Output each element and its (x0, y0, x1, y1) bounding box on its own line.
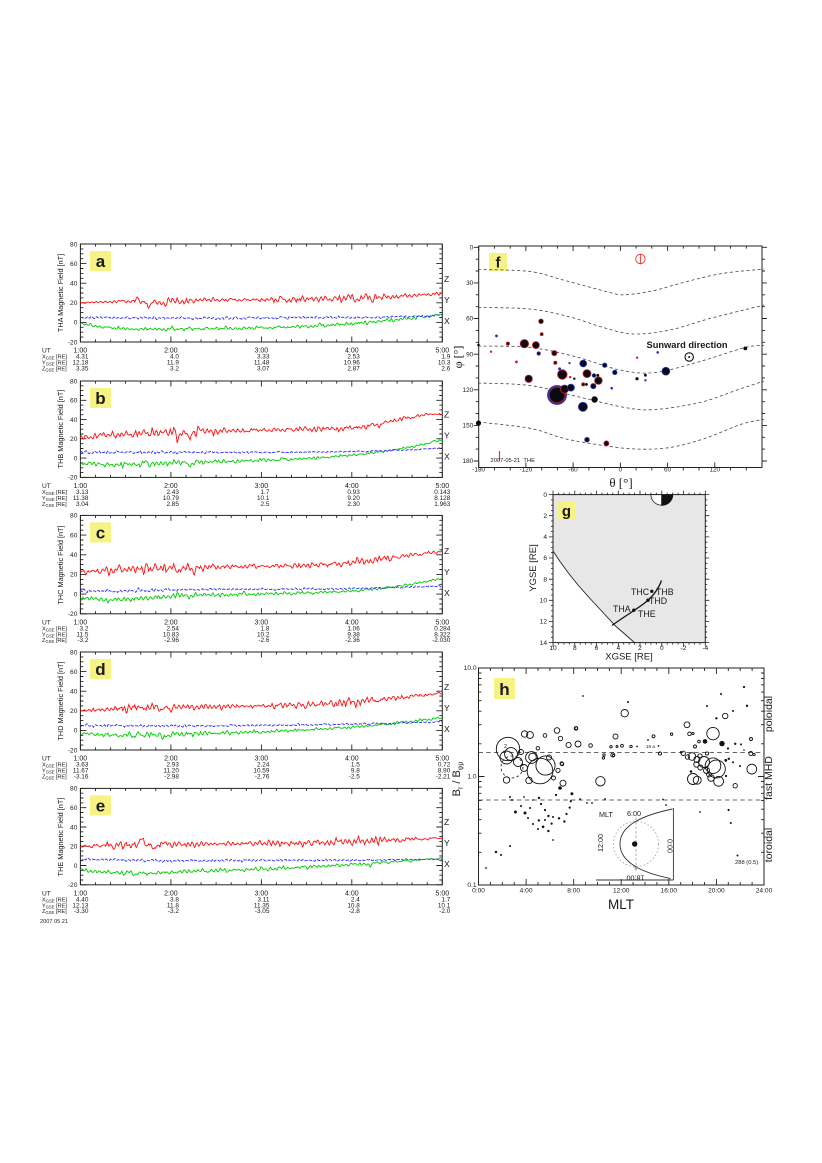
svg-text:d: d (95, 660, 105, 679)
svg-text:-20: -20 (68, 611, 78, 618)
svg-text:THD Magnetic Field [nT]: THD Magnetic Field [nT] (56, 661, 65, 740)
svg-text:8: 8 (573, 645, 577, 652)
svg-text:Y: Y (444, 430, 450, 440)
svg-text:40: 40 (70, 552, 78, 559)
svg-text:1.0: 1.0 (467, 774, 476, 781)
svg-text:60: 60 (70, 398, 78, 405)
svg-text:3.04: 3.04 (76, 501, 89, 508)
svg-text:60: 60 (70, 805, 78, 812)
svg-text:60: 60 (70, 669, 78, 676)
svg-text:-3.16: -3.16 (74, 773, 89, 780)
svg-text:MLT: MLT (599, 810, 613, 819)
svg-text:MLT: MLT (608, 897, 634, 912)
svg-text:THE Magnetic Field [nT]: THE Magnetic Field [nT] (56, 798, 65, 877)
svg-text:150: 150 (463, 423, 474, 430)
svg-text:6: 6 (595, 645, 599, 652)
svg-text:8: 8 (543, 576, 547, 583)
svg-text:fast MHD: fast MHD (763, 756, 775, 800)
svg-text:-2.0: -2.0 (439, 908, 450, 915)
svg-text:0: 0 (619, 467, 623, 474)
svg-text:14: 14 (540, 640, 548, 647)
svg-text:-2.98: -2.98 (164, 773, 179, 780)
svg-text:2.5: 2.5 (261, 501, 270, 508)
svg-text:ZGSE [RE]: ZGSE [RE] (42, 774, 67, 780)
svg-text:2007-05-21 THE: 2007-05-21 THE (491, 458, 536, 464)
svg-text:20: 20 (70, 436, 78, 443)
svg-text:10.0: 10.0 (464, 665, 477, 672)
svg-text:ZGSE [RE]: ZGSE [RE] (42, 502, 67, 508)
svg-text:UT: UT (42, 348, 51, 355)
svg-text:8:00: 8:00 (567, 888, 580, 895)
svg-text:10: 10 (540, 598, 548, 605)
svg-text:-3.05: -3.05 (255, 908, 270, 915)
svg-text:g: g (562, 503, 571, 520)
svg-text:90: 90 (466, 351, 474, 358)
svg-text:80: 80 (70, 786, 78, 793)
svg-text:Z: Z (444, 409, 449, 419)
svg-text:15 a: 15 a (646, 744, 655, 749)
svg-text:-2: -2 (681, 645, 687, 652)
svg-text:20:00: 20:00 (708, 888, 725, 895)
svg-text:-60: -60 (568, 467, 578, 474)
svg-text:80: 80 (70, 241, 78, 248)
svg-text:18:00: 18:00 (627, 874, 645, 883)
svg-text:e: e (96, 796, 105, 815)
svg-text:THD: THD (649, 596, 667, 606)
svg-text:3.07: 3.07 (257, 365, 270, 372)
svg-text:-3.30: -3.30 (74, 908, 89, 915)
svg-text:60: 60 (664, 467, 672, 474)
svg-text:4:00: 4:00 (520, 888, 533, 895)
svg-text:θ [°]: θ [°] (609, 475, 632, 490)
svg-text:120: 120 (709, 467, 720, 474)
svg-text:-2.21: -2.21 (436, 773, 451, 780)
svg-text:-20: -20 (68, 339, 78, 346)
svg-text:2.30: 2.30 (347, 501, 360, 508)
svg-text:-2.96: -2.96 (164, 637, 179, 644)
svg-text:c: c (96, 523, 105, 542)
svg-text:20: 20 (70, 844, 78, 851)
svg-text:0: 0 (543, 492, 547, 499)
svg-text:30: 30 (466, 280, 474, 287)
svg-text:20: 20 (70, 708, 78, 715)
svg-text:X: X (444, 859, 450, 869)
svg-text:180: 180 (463, 458, 474, 465)
svg-text:2.87: 2.87 (347, 365, 360, 372)
svg-text:40: 40 (70, 417, 78, 424)
svg-text:288 (0.5): 288 (0.5) (735, 860, 758, 866)
svg-text:12: 12 (540, 619, 548, 626)
svg-text:6: 6 (543, 555, 547, 562)
svg-text:YGSE [RE]: YGSE [RE] (528, 544, 539, 592)
svg-text:0: 0 (74, 320, 78, 327)
svg-text:ZGSE [RE]: ZGSE [RE] (42, 909, 67, 915)
svg-text:toroidal: toroidal (763, 828, 775, 862)
svg-text:-2.76: -2.76 (255, 773, 270, 780)
svg-text:80: 80 (70, 513, 78, 520)
svg-text:Sunward direction: Sunward direction (647, 340, 728, 350)
svg-text:Z: Z (444, 274, 449, 284)
svg-text:80: 80 (70, 649, 78, 656)
svg-text:40: 40 (70, 689, 78, 696)
svg-text:Z: Z (444, 546, 449, 556)
svg-text:60: 60 (70, 532, 78, 539)
svg-text:20: 20 (70, 300, 78, 307)
svg-text:Z: Z (444, 682, 449, 692)
svg-text:0: 0 (74, 728, 78, 735)
svg-text:b: b (95, 389, 105, 408)
svg-text:X: X (444, 316, 450, 326)
svg-text:60: 60 (466, 316, 474, 323)
svg-text:12:00: 12:00 (613, 888, 630, 895)
svg-text:X: X (444, 451, 450, 461)
svg-text:20: 20 (70, 572, 78, 579)
svg-text:3.35: 3.35 (76, 365, 89, 372)
svg-text:UT: UT (42, 756, 51, 763)
svg-text:40: 40 (70, 824, 78, 831)
svg-text:X: X (444, 588, 450, 598)
svg-text:-20: -20 (68, 747, 78, 754)
svg-text:4: 4 (543, 534, 547, 541)
svg-text:-2.8: -2.8 (349, 908, 360, 915)
svg-text:ZGSE [RE]: ZGSE [RE] (42, 638, 67, 644)
svg-text:-2.36: -2.36 (345, 637, 360, 644)
svg-text:THB: THB (656, 587, 674, 597)
svg-text:3.2: 3.2 (170, 365, 179, 372)
svg-text:X: X (444, 724, 450, 734)
svg-text:-120: -120 (520, 467, 533, 474)
svg-text:24:00: 24:00 (756, 888, 773, 895)
svg-text:0:00: 0:00 (666, 839, 675, 853)
svg-text:THB Magnetic Field [nT]: THB Magnetic Field [nT] (56, 390, 65, 469)
svg-text:-3.2: -3.2 (77, 637, 88, 644)
svg-text:-2.6: -2.6 (258, 637, 269, 644)
svg-text:80: 80 (70, 378, 78, 385)
svg-text:40: 40 (70, 281, 78, 288)
svg-text:UT: UT (42, 890, 51, 897)
svg-text:0: 0 (74, 863, 78, 870)
svg-text:-4: -4 (702, 645, 708, 652)
svg-text:120: 120 (463, 387, 474, 394)
svg-text:Z: Z (444, 817, 449, 827)
svg-text:ZGSE [RE]: ZGSE [RE] (42, 366, 67, 372)
svg-text:0: 0 (660, 645, 664, 652)
svg-text:φ [°]: φ [°] (451, 346, 465, 369)
svg-text:Y: Y (444, 567, 450, 577)
svg-text:0: 0 (470, 245, 474, 252)
svg-text:THC Magnetic Field [nT]: THC Magnetic Field [nT] (56, 525, 65, 604)
svg-text:2: 2 (504, 744, 507, 750)
svg-text:-20: -20 (68, 475, 78, 482)
svg-text:UT: UT (42, 619, 51, 626)
svg-text:0:00: 0:00 (472, 888, 485, 895)
svg-text:Y: Y (444, 703, 450, 713)
svg-text:0: 0 (74, 591, 78, 598)
svg-text:THA Magnetic Field [nT]: THA Magnetic Field [nT] (56, 254, 65, 332)
svg-text:XGSE [RE]: XGSE [RE] (605, 652, 653, 663)
svg-text:10: 10 (549, 645, 557, 652)
svg-text:12:00: 12:00 (596, 834, 605, 852)
svg-text:UT: UT (42, 483, 51, 490)
svg-text:2.6: 2.6 (441, 365, 450, 372)
svg-text:1.963: 1.963 (434, 501, 450, 508)
svg-text:THC: THC (631, 587, 650, 597)
svg-text:poloidal: poloidal (763, 696, 775, 732)
svg-text:16:00: 16:00 (661, 888, 678, 895)
svg-text:6:00: 6:00 (627, 809, 641, 818)
svg-text:THE: THE (638, 609, 656, 619)
svg-text:60: 60 (70, 261, 78, 268)
svg-text:Y: Y (444, 838, 450, 848)
svg-text:-2.030: -2.030 (432, 637, 451, 644)
svg-text:2007 05 21: 2007 05 21 (40, 919, 68, 925)
svg-text:a: a (96, 252, 106, 271)
svg-text:-180: -180 (472, 467, 485, 474)
svg-text:-3.2: -3.2 (168, 908, 179, 915)
svg-text:THA: THA (613, 604, 631, 614)
svg-text:2.85: 2.85 (166, 501, 179, 508)
svg-text:0: 0 (74, 455, 78, 462)
svg-text:2: 2 (543, 513, 547, 520)
svg-text:-20: -20 (68, 882, 78, 889)
svg-text:-2.5: -2.5 (349, 773, 360, 780)
svg-text:h: h (499, 680, 509, 699)
svg-text:Y: Y (444, 295, 450, 305)
